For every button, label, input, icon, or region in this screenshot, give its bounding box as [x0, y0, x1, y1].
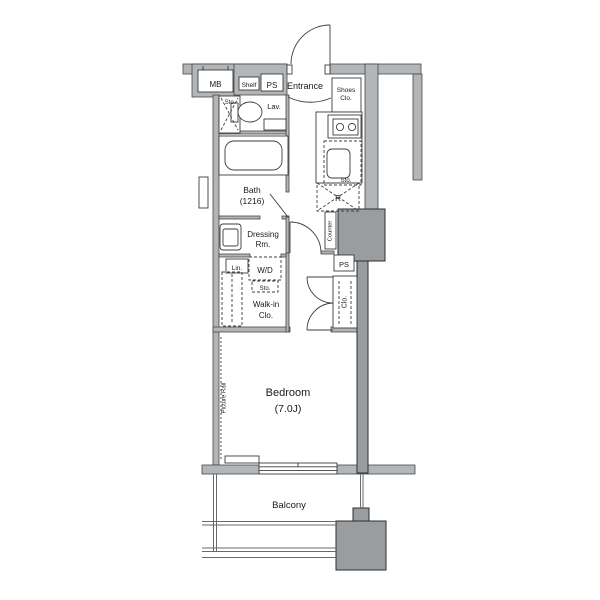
- entrance-jamb-left: [287, 65, 292, 74]
- closet-door-arc-bottom: [307, 303, 333, 330]
- kitchen-storage-label: Sto.: [341, 178, 352, 184]
- wall-dressing-wd-a: [219, 254, 250, 257]
- dressing-room-label: Dressing: [247, 230, 279, 239]
- vanity-basin-icon: [223, 229, 238, 246]
- fridge-label: R: [335, 194, 341, 203]
- shoes-closet-label: Clo.: [340, 95, 352, 102]
- ps-top-label: PS: [267, 81, 278, 90]
- wall-door-strike: [321, 251, 334, 254]
- closet-label: Clo.: [342, 296, 349, 309]
- window-side-panel: [225, 456, 259, 463]
- dressing-room-label: Rm.: [256, 240, 271, 249]
- wall-wic-right: [286, 253, 289, 332]
- bathtub-icon: [225, 141, 282, 170]
- linen-label: Lin.: [232, 265, 243, 272]
- pillar-column: [357, 261, 368, 473]
- wall-bottom-left: [202, 465, 259, 474]
- entrance-jamb-right: [325, 65, 330, 74]
- picture-rail-label: Picture Rail: [222, 383, 228, 414]
- wd-storage-label: Sto.: [260, 286, 271, 292]
- entrance-step-line: [288, 97, 331, 102]
- wall-wic-bottom: [213, 327, 290, 332]
- entrance-door-arc: [291, 25, 330, 64]
- burner-icon: [336, 123, 343, 130]
- closet-door-arc-top: [307, 277, 333, 303]
- pillar-block-upper: [338, 209, 385, 261]
- wall-left: [213, 95, 219, 465]
- counter-label: Counter: [328, 221, 334, 242]
- walk-in-closet-label: Clo.: [259, 311, 273, 320]
- burner-icon: [348, 123, 355, 130]
- wall-neighbor-stub: [413, 74, 422, 180]
- mb-label: MB: [210, 80, 222, 89]
- bath-size-label: (1216): [240, 196, 265, 206]
- bedroom-label: Bedroom: [266, 387, 311, 399]
- pillar-block-lower: [336, 521, 386, 570]
- sink-icon: [327, 149, 350, 178]
- floorplan-drawing: MB Shelf PS Entrance Shoes Clo. Sto. Lav…: [0, 0, 600, 600]
- lav-storage-label: Sto.: [225, 100, 236, 106]
- toilet-bowl-icon: [238, 102, 262, 122]
- shelf-label: Shelf: [242, 82, 257, 89]
- shoes-closet-label: Shoes: [337, 87, 356, 94]
- bath-door-line: [270, 194, 288, 217]
- wall-corridor-lower: [286, 217, 289, 253]
- pipe-niche-box: [199, 177, 208, 208]
- floorplan-page: MB Shelf PS Entrance Shoes Clo. Sto. Lav…: [0, 0, 600, 600]
- bath-label: Bath: [243, 185, 261, 195]
- pillar-block-lower-notch: [353, 508, 369, 521]
- walk-in-closet-label: Walk-in: [253, 300, 279, 309]
- entrance-label: Entrance: [287, 81, 323, 91]
- wall-bottom-right: [337, 465, 415, 474]
- lav-label: Lav.: [267, 102, 281, 111]
- wall-right: [365, 64, 378, 210]
- washer-dryer-label: W/D: [257, 266, 273, 275]
- washbasin-counter-icon: [264, 119, 286, 130]
- bedroom-size-label: (7.0J): [275, 403, 302, 415]
- wall-bath-dressing-a: [219, 216, 260, 219]
- ps-mid-label: PS: [339, 260, 349, 269]
- room-door-arc: [290, 222, 321, 253]
- balcony-label: Balcony: [272, 500, 306, 511]
